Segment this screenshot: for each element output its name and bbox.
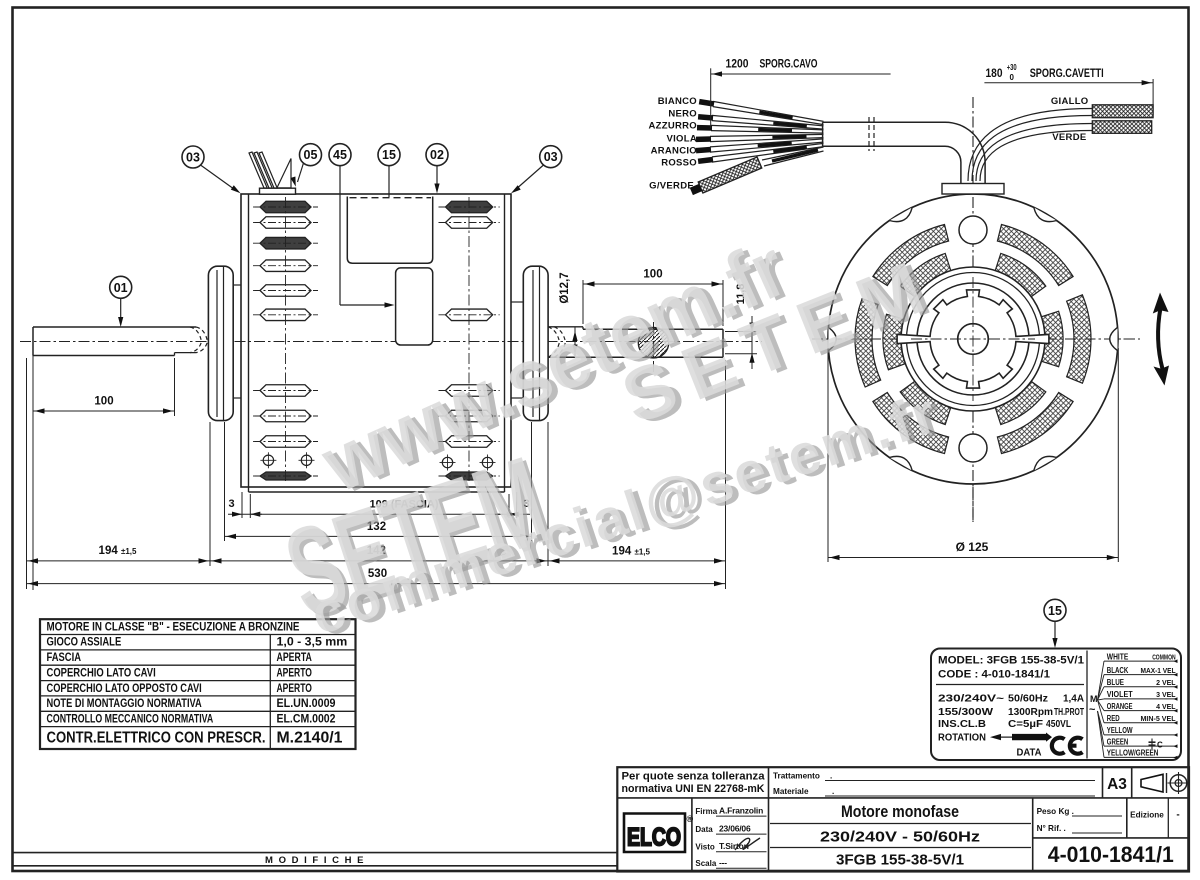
svg-text:A3: A3: [1107, 776, 1127, 793]
svg-text:ARANCIO: ARANCIO: [651, 146, 697, 157]
svg-text:3: 3: [228, 498, 234, 510]
svg-text:02: 02: [430, 148, 444, 162]
svg-text:Trattamento: Trattamento: [773, 772, 820, 781]
svg-text:+30: +30: [1007, 63, 1017, 72]
svg-text:2 VEL: 2 VEL: [1156, 678, 1176, 687]
svg-text:FASCIA: FASCIA: [47, 652, 82, 664]
svg-text:EL.UN.0009: EL.UN.0009: [277, 698, 336, 710]
svg-text:NERO: NERO: [668, 109, 697, 120]
svg-text:A.Franzolin: A.Franzolin: [719, 806, 763, 816]
svg-text:MODEL: 3FGB 155-38-5V/1: MODEL: 3FGB 155-38-5V/1: [938, 654, 1084, 666]
svg-text:CODE : 4-010-1841/1: CODE : 4-010-1841/1: [938, 669, 1050, 681]
svg-text:180: 180: [986, 66, 1003, 80]
svg-text:Materiale: Materiale: [773, 787, 809, 796]
svg-text:SPORG.CAVO: SPORG.CAVO: [760, 57, 818, 71]
svg-text:COMMON: COMMON: [1152, 652, 1175, 661]
svg-text:15: 15: [1048, 604, 1062, 618]
svg-text:-: -: [1176, 810, 1179, 821]
svg-text:100: 100: [94, 396, 113, 408]
svg-text:GIALLO: GIALLO: [1051, 96, 1089, 107]
svg-text:INS.CL.B: INS.CL.B: [938, 718, 986, 730]
svg-text:VIOLA: VIOLA: [666, 133, 697, 144]
svg-text:450VL: 450VL: [1046, 718, 1071, 730]
svg-text:RED: RED: [1107, 714, 1120, 723]
svg-text:.: .: [832, 787, 834, 796]
svg-text:M O D I F I C H E: M O D I F I C H E: [265, 855, 365, 866]
svg-text:VIOLET: VIOLET: [1107, 690, 1133, 699]
svg-text:N° Rif. .: N° Rif. .: [1037, 824, 1066, 833]
svg-text:BIANCO: BIANCO: [658, 96, 697, 107]
svg-text:T.Sirtori: T.Sirtori: [719, 841, 749, 851]
svg-text:M.2140/1: M.2140/1: [277, 730, 343, 747]
svg-text:BLACK: BLACK: [1107, 666, 1129, 675]
svg-text:BLUE: BLUE: [1107, 678, 1125, 687]
svg-text:Scala: Scala: [695, 859, 716, 868]
svg-text:Data: Data: [695, 825, 713, 834]
svg-text:COPERCHIO LATO OPPOSTO CAVI: COPERCHIO LATO OPPOSTO CAVI: [47, 683, 202, 695]
svg-text:C: C: [1157, 741, 1163, 750]
svg-text:Ø12,7: Ø12,7: [559, 272, 571, 303]
svg-text:YELLOW: YELLOW: [1107, 726, 1133, 735]
svg-text:4-010-1841/1: 4-010-1841/1: [1048, 842, 1174, 867]
svg-text:1,4A: 1,4A: [1063, 693, 1084, 705]
svg-text:---: ---: [719, 858, 727, 868]
svg-text:APERTO: APERTO: [277, 667, 312, 679]
svg-text:ROSSO: ROSSO: [661, 157, 697, 168]
svg-text:1300Rpm: 1300Rpm: [1008, 706, 1053, 718]
svg-text:Firma: Firma: [695, 807, 717, 816]
svg-text:WHITE: WHITE: [1107, 652, 1129, 661]
svg-text:YELLOW/GREEN: YELLOW/GREEN: [1107, 749, 1159, 758]
svg-text:01: 01: [114, 281, 128, 295]
svg-text:0: 0: [1009, 73, 1014, 82]
svg-text:Visto: Visto: [695, 843, 715, 852]
svg-text:VERDE: VERDE: [1052, 132, 1086, 143]
svg-text:GREEN: GREEN: [1107, 737, 1129, 746]
svg-text:Edizione: Edizione: [1130, 811, 1164, 820]
svg-text:DATA: DATA: [1017, 748, 1042, 759]
svg-text:23/06/06: 23/06/06: [719, 824, 751, 834]
svg-text:1200: 1200: [726, 57, 749, 71]
svg-text:03: 03: [186, 151, 200, 165]
svg-text:.: .: [830, 772, 832, 781]
svg-text:15: 15: [382, 148, 396, 162]
svg-text:3 VEL: 3 VEL: [1156, 690, 1176, 699]
svg-text:TH.PROT: TH.PROT: [1054, 706, 1084, 718]
svg-text:ORANGE: ORANGE: [1107, 702, 1133, 711]
svg-text:~: ~: [1089, 704, 1096, 716]
svg-text:SPORG.CAVETTI: SPORG.CAVETTI: [1030, 66, 1104, 80]
svg-text:Per quote senza tolleranza: Per quote senza tolleranza: [622, 771, 766, 783]
svg-text:155/300W: 155/300W: [938, 706, 993, 718]
svg-text:®: ®: [687, 814, 694, 824]
svg-text:03: 03: [544, 150, 558, 164]
svg-text:NOTE DI MONTAGGIO NORMATIVA: NOTE DI MONTAGGIO NORMATIVA: [47, 698, 202, 710]
svg-text:ELCO: ELCO: [627, 824, 681, 852]
svg-text:C=5µF: C=5µF: [1008, 718, 1044, 730]
svg-text:MAX-1 VEL: MAX-1 VEL: [1141, 666, 1177, 675]
svg-text:194 ±1,5: 194 ±1,5: [99, 545, 137, 557]
svg-text:4 VEL: 4 VEL: [1156, 702, 1176, 711]
svg-text:Motore monofase: Motore monofase: [841, 803, 959, 821]
svg-text:APERTA: APERTA: [277, 652, 312, 664]
svg-text:3FGB 155-38-5V/1: 3FGB 155-38-5V/1: [836, 852, 964, 869]
svg-text:230/240V - 50/60Hz: 230/240V - 50/60Hz: [820, 829, 980, 846]
svg-text:normativa UNI EN 22768-mK: normativa UNI EN 22768-mK: [622, 783, 765, 795]
svg-text:G/VERDE: G/VERDE: [649, 181, 694, 192]
svg-text:230/240V~: 230/240V~: [938, 693, 1004, 705]
svg-text:MOTORE IN CLASSE "B" - ESECUZI: MOTORE IN CLASSE "B" - ESECUZIONE A BRON…: [47, 622, 300, 634]
svg-text:Peso Kg .: Peso Kg .: [1037, 807, 1074, 816]
svg-text:CONTR.ELETTRICO CON PRESCR.: CONTR.ELETTRICO CON PRESCR.: [47, 730, 266, 747]
svg-text:AZZURRO: AZZURRO: [648, 121, 697, 132]
svg-text:ROTATION: ROTATION: [938, 732, 986, 744]
svg-text:M: M: [1090, 694, 1098, 704]
svg-text:05: 05: [304, 148, 318, 162]
svg-text:CONTROLLO MECCANICO NORMATIVA: CONTROLLO MECCANICO NORMATIVA: [47, 714, 214, 726]
svg-text:Ø 125: Ø 125: [956, 540, 989, 554]
svg-text:50/60Hz: 50/60Hz: [1008, 693, 1048, 705]
svg-text:GIOCO ASSIALE: GIOCO ASSIALE: [47, 637, 122, 649]
svg-text:EL.CM.0002: EL.CM.0002: [277, 714, 336, 726]
svg-text:MIN-5 VEL: MIN-5 VEL: [1141, 714, 1177, 723]
svg-text:COPERCHIO LATO CAVI: COPERCHIO LATO CAVI: [47, 667, 156, 679]
svg-text:APERTO: APERTO: [277, 683, 312, 695]
svg-text:45: 45: [333, 148, 347, 162]
